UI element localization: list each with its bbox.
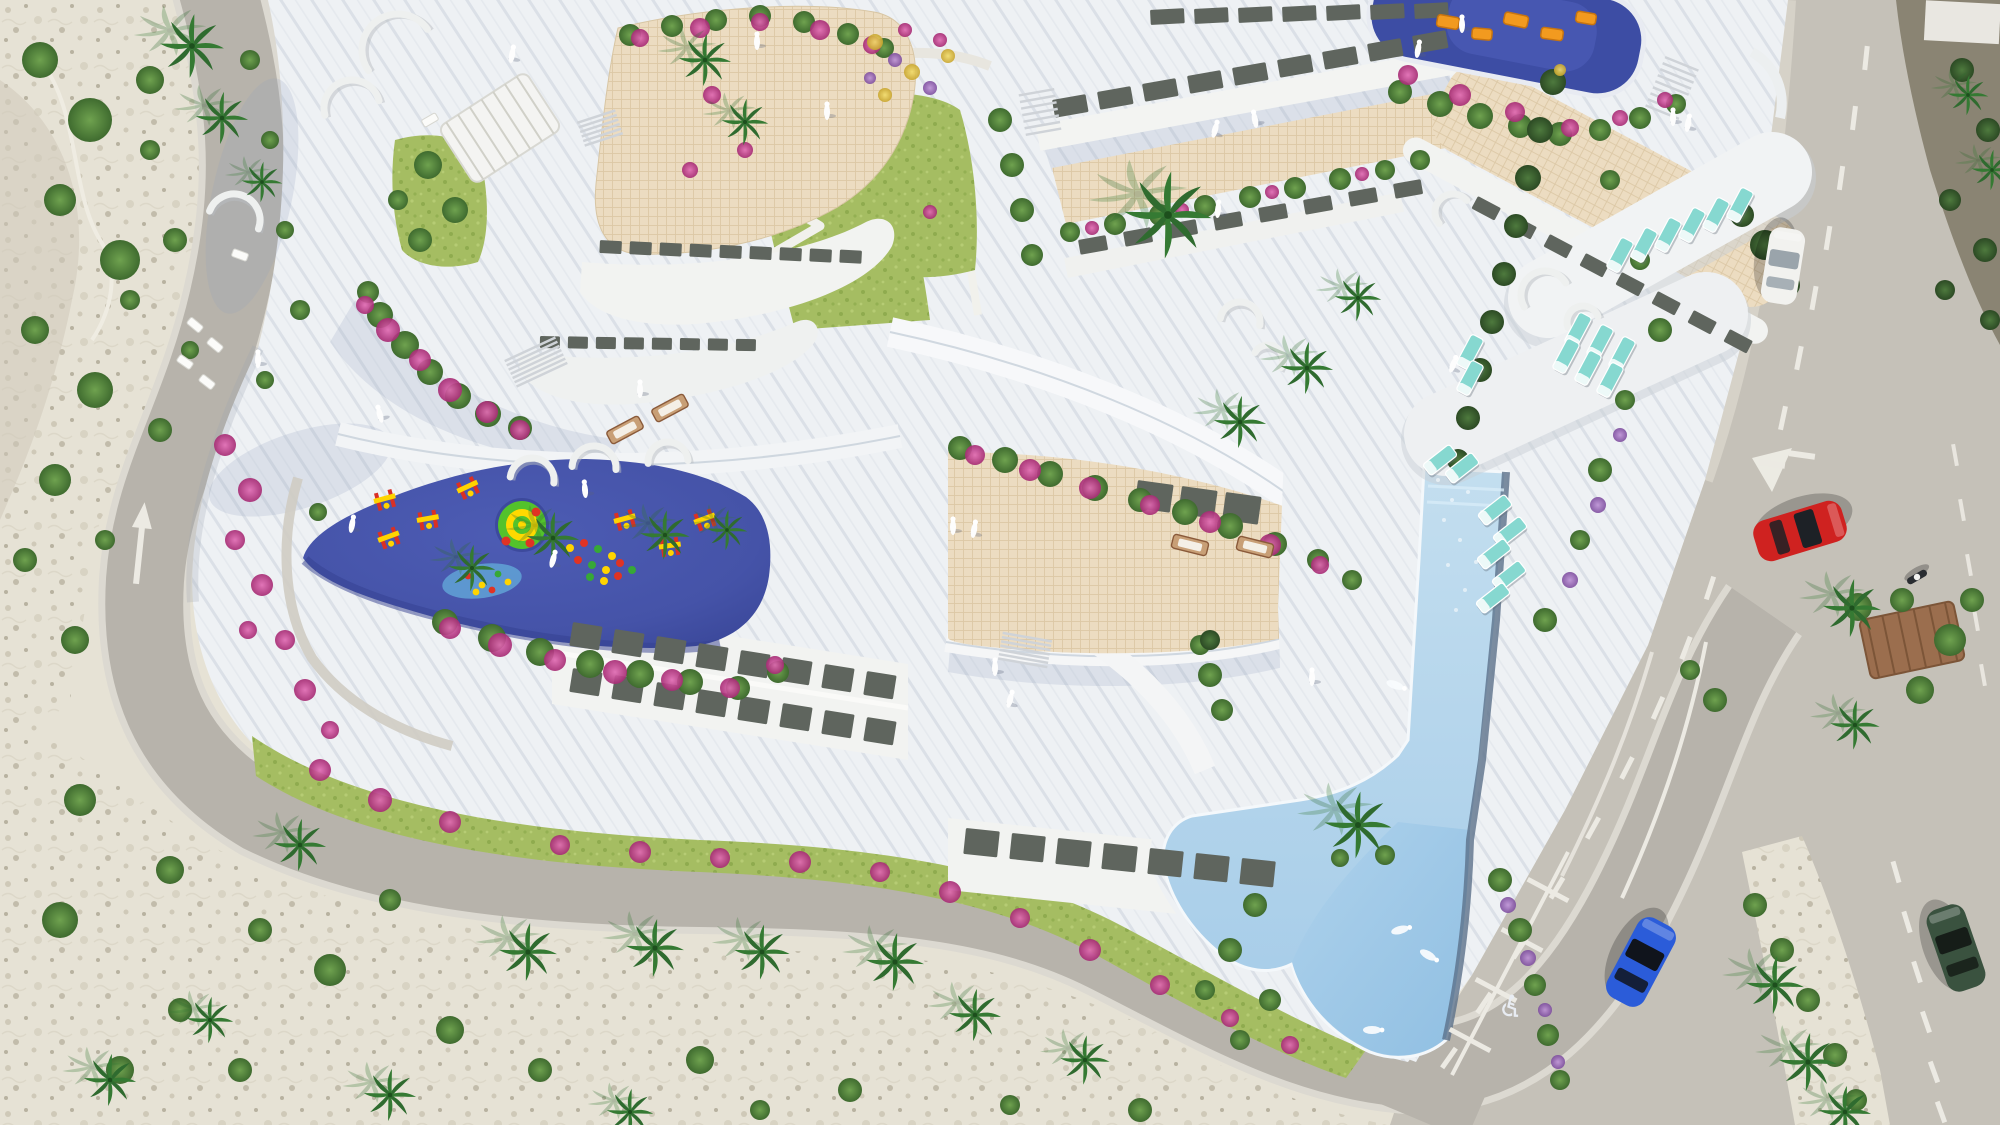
bougainvillea [1398,65,1418,85]
bush [442,197,468,223]
bush [661,15,683,37]
bougainvillea [488,633,512,657]
window-bay [736,339,756,351]
bougainvillea [933,33,947,47]
bush [148,418,172,442]
window-bay [611,629,644,657]
bush [68,98,112,142]
window-bay [708,338,728,350]
bush [21,316,49,344]
window-bay [1150,8,1185,25]
window-bay [821,664,854,692]
bougainvillea [544,649,566,671]
scene-svg: ♿ [0,0,2000,1125]
bougainvillea [631,29,649,47]
bougainvillea [1355,167,1369,181]
bush [1960,588,1984,612]
bougainvillea [710,848,730,868]
rooftop-toy [1575,11,1597,25]
bush [1467,103,1493,129]
bush [77,372,113,408]
stepping-dot [608,552,616,560]
violet-flowers [1538,1003,1552,1017]
bush [1600,170,1620,190]
bush [1331,849,1349,867]
bush [64,784,96,816]
road-spur [1380,1066,1480,1108]
bougainvillea [1085,221,1099,235]
bush [309,503,327,521]
bush [140,140,160,160]
bush [626,660,654,688]
bougainvillea [214,434,236,456]
bougainvillea [603,660,627,684]
stepping-dot [614,572,622,580]
bush [163,228,187,252]
bush [1060,222,1080,242]
pool-sparkle [1458,538,1462,542]
window-bay [1370,3,1405,20]
bush [1648,318,1672,342]
bush [248,918,272,942]
bush [1010,198,1034,222]
bush [228,1058,252,1082]
tree [1504,214,1528,238]
bougainvillea [409,349,431,371]
violet-flowers [1613,428,1627,442]
tree [1976,118,2000,142]
window-bay [779,247,802,261]
bougainvillea [870,862,890,882]
bougainvillea [1449,84,1471,106]
stepping-dot [616,559,624,567]
bush [1342,570,1362,590]
bush [1410,150,1430,170]
pool-sparkle [1446,563,1450,567]
bougainvillea [1079,477,1101,499]
bush [240,50,260,70]
aerial-resort-scene: ♿ [0,0,2000,1125]
bush [1796,988,1820,1012]
bush [1488,868,1512,892]
rooftop-toy [1540,27,1563,41]
pool-sparkle [1466,490,1470,494]
bush [1629,107,1651,129]
bougainvillea [238,478,262,502]
bush [1000,1095,1020,1115]
bush [1743,893,1767,917]
tree [1980,310,2000,330]
bush [61,626,89,654]
bougainvillea [438,378,462,402]
bougainvillea [1019,459,1041,481]
bougainvillea [1221,1009,1239,1027]
bougainvillea [225,530,245,550]
tree [1456,406,1480,430]
bougainvillea [939,881,961,903]
bougainvillea [356,296,374,314]
bush [44,184,76,216]
bougainvillea [737,142,753,158]
target-dot [526,539,535,548]
tree [1973,238,1997,262]
window-bay [1101,843,1138,872]
window-bay [569,622,602,650]
window-bay [1147,848,1184,877]
bougainvillea [275,630,295,650]
bougainvillea [1281,1036,1299,1054]
stepping-dot [628,566,636,574]
bougainvillea [368,788,392,812]
bush [1128,1098,1152,1122]
window-bay [749,246,772,260]
bush [1037,461,1063,487]
window-bay [809,248,832,262]
bush [1588,458,1612,482]
window-bay [624,337,644,349]
window-bay [1239,858,1276,887]
bougainvillea [1505,102,1525,122]
bougainvillea [1199,511,1221,533]
bush [1230,1030,1250,1050]
bougainvillea [766,656,784,674]
yellow-flowers [941,49,955,63]
tree [1515,165,1541,191]
bougainvillea [682,162,698,178]
bush [100,240,140,280]
bougainvillea [703,86,721,104]
bush [1217,513,1243,539]
bush [414,151,442,179]
bush [1508,918,1532,942]
bush [1537,1024,1559,1046]
bush [1890,588,1914,612]
bougainvillea [661,669,683,691]
bush [992,447,1018,473]
bush [1680,660,1700,680]
bougainvillea [810,20,830,40]
bush [1218,938,1242,962]
window-bay [689,244,712,258]
bush [1703,688,1727,712]
bush [13,548,37,572]
bougainvillea [1079,939,1101,961]
pool-sparkle [1463,588,1467,592]
bush [1770,938,1794,962]
window-bay [863,671,896,699]
window-bay [596,337,616,349]
rooftop-toy [1472,28,1493,41]
violet-flowers [1590,497,1606,513]
bush [379,889,401,911]
bougainvillea [376,318,400,342]
window-bay [719,245,742,259]
splash-dot [473,589,480,596]
bush [686,1046,714,1074]
stepping-dot [600,577,608,585]
bougainvillea [309,759,331,781]
bougainvillea [439,811,461,833]
bougainvillea [294,679,316,701]
bougainvillea [629,841,651,863]
bush [136,66,164,94]
tree [1200,630,1220,650]
splash-dot [489,587,496,594]
bush [1906,676,1934,704]
bush [1000,153,1024,177]
bush [39,464,71,496]
violet-flowers [1551,1055,1565,1069]
bougainvillea [1612,110,1628,126]
bush [95,530,115,550]
bush [1195,980,1215,1000]
bougainvillea [1311,556,1329,574]
violet-flowers [1520,950,1536,966]
window-bay [1009,833,1046,862]
bougainvillea [965,445,985,465]
tree [1935,280,1955,300]
bush [156,856,184,884]
bush [1021,244,1043,266]
window-bay [1238,6,1273,23]
bush [1589,119,1611,141]
violet-flowers [1562,572,1578,588]
bush [1284,177,1306,199]
bush [1524,974,1546,996]
bush [388,190,408,210]
pool-sparkle [1450,498,1454,502]
window-bay [568,336,588,348]
tree [1480,310,1504,334]
splash-dot [495,571,502,578]
window-bay [839,250,862,264]
bougainvillea [1657,92,1673,108]
tree [1527,117,1553,143]
bush [1243,893,1267,917]
bush [436,1016,464,1044]
stepping-dot [602,566,610,574]
bush [261,131,279,149]
bougainvillea [898,23,912,37]
bush [276,221,294,239]
violet-flowers [1500,897,1516,913]
bougainvillea [439,617,461,639]
bush [1198,663,1222,687]
yellow-flowers [867,34,883,50]
yellow-flowers [1554,64,1566,76]
bougainvillea [1140,495,1160,515]
window-bay [629,241,652,255]
window-bay [1193,853,1230,882]
bush [1259,989,1281,1011]
bougainvillea [1010,908,1030,928]
splash-dot [505,579,512,586]
bougainvillea [476,401,498,423]
target-dot [502,537,511,546]
bush [1375,160,1395,180]
tree [1950,58,1974,82]
stepping-dot [588,561,596,569]
stepping-dot [594,545,602,553]
bougainvillea [1265,185,1279,199]
window-bay [1194,7,1229,24]
window-bay [653,636,686,664]
window-bay [680,338,700,350]
pool-sparkle [1436,478,1440,482]
pool-sparkle [1442,518,1446,522]
yellow-flowers [904,64,920,80]
bush [1533,608,1557,632]
window-bay [1055,838,1092,867]
bougainvillea [239,621,257,639]
window-bay [652,338,672,350]
bush [314,954,346,986]
bush [1615,390,1635,410]
pool-sparkle [1454,608,1458,612]
bougainvillea [720,678,740,698]
topright-rooftop [1924,0,2000,44]
violet-flowers [888,53,902,67]
bush [1211,699,1233,721]
window-bay [963,828,1000,857]
window-bay [737,696,770,724]
window-bay [821,710,854,738]
bush [1329,168,1351,190]
bush [22,42,58,78]
bush [750,1100,770,1120]
bougainvillea [550,835,570,855]
tree [1492,262,1516,286]
bush [120,290,140,310]
stepping-dot [574,556,582,564]
bush [256,371,274,389]
bougainvillea [1150,975,1170,995]
violet-flowers [923,81,937,95]
window-bay [737,650,770,678]
window-bay [1326,4,1361,21]
window-bay [1282,5,1317,22]
bush [1570,530,1590,550]
bush [408,228,432,252]
violet-flowers [864,72,876,84]
bougainvillea [789,851,811,873]
window-bay [863,717,896,745]
bougainvillea [251,574,273,596]
bush [1934,624,1966,656]
bush [988,108,1012,132]
bush [1550,1070,1570,1090]
bush [290,300,310,320]
stepping-dot [586,573,594,581]
stepping-dot [580,539,588,547]
window-bay [695,643,728,671]
bougainvillea [751,13,769,31]
bush [838,1078,862,1102]
yellow-flowers [878,88,892,102]
window-bay [599,240,622,254]
bougainvillea [923,205,937,219]
window-bay [659,242,682,256]
bush [1239,186,1261,208]
bougainvillea [321,721,339,739]
tree [1939,189,1961,211]
bougainvillea [1561,119,1579,137]
bush [528,1058,552,1082]
bush [837,23,859,45]
bush [576,650,604,678]
bush [42,902,78,938]
bush [1172,499,1198,525]
window-bay [779,703,812,731]
bougainvillea [510,420,530,440]
